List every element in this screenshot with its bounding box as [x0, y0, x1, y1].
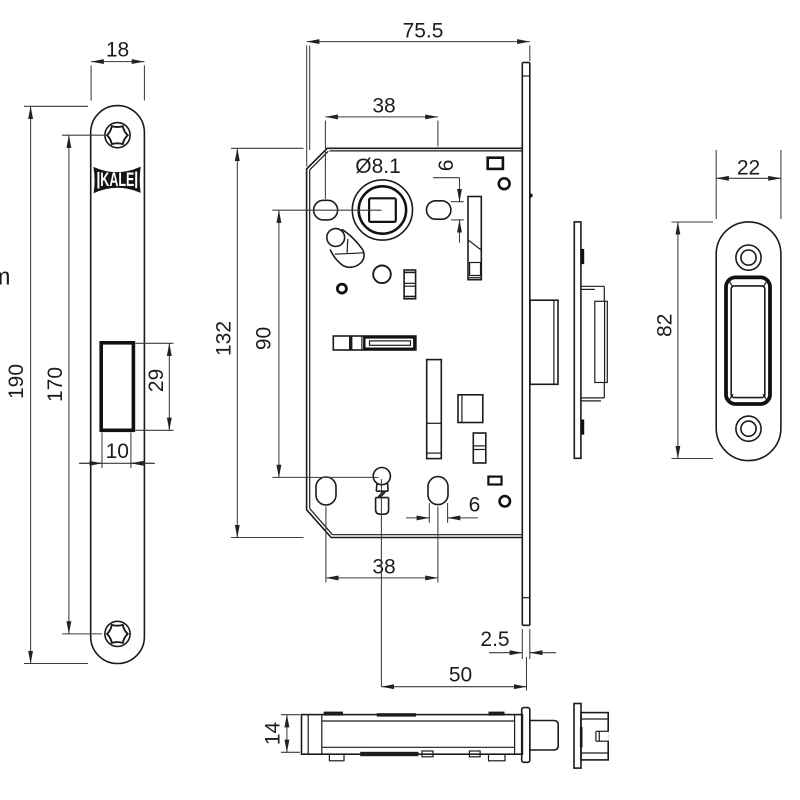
svg-text:75.5: 75.5 [403, 20, 444, 43]
svg-text:90: 90 [253, 327, 276, 350]
svg-text:6: 6 [469, 494, 481, 517]
svg-text:KALE: KALE [100, 170, 134, 191]
svg-text:2.5: 2.5 [480, 628, 509, 651]
svg-text:38: 38 [372, 95, 395, 118]
svg-text:m: m [0, 263, 11, 290]
svg-text:Ø8.1: Ø8.1 [355, 155, 401, 178]
svg-text:18: 18 [106, 39, 129, 62]
svg-text:6: 6 [435, 160, 458, 172]
svg-text:10: 10 [106, 440, 129, 463]
svg-text:50: 50 [449, 664, 472, 687]
svg-text:14: 14 [262, 722, 285, 746]
svg-text:38: 38 [372, 556, 395, 579]
svg-text:132: 132 [213, 321, 236, 356]
svg-text:82: 82 [654, 314, 677, 337]
svg-text:29: 29 [145, 369, 168, 392]
svg-text:170: 170 [44, 367, 67, 402]
svg-text:190: 190 [5, 364, 28, 399]
svg-text:22: 22 [737, 156, 760, 179]
